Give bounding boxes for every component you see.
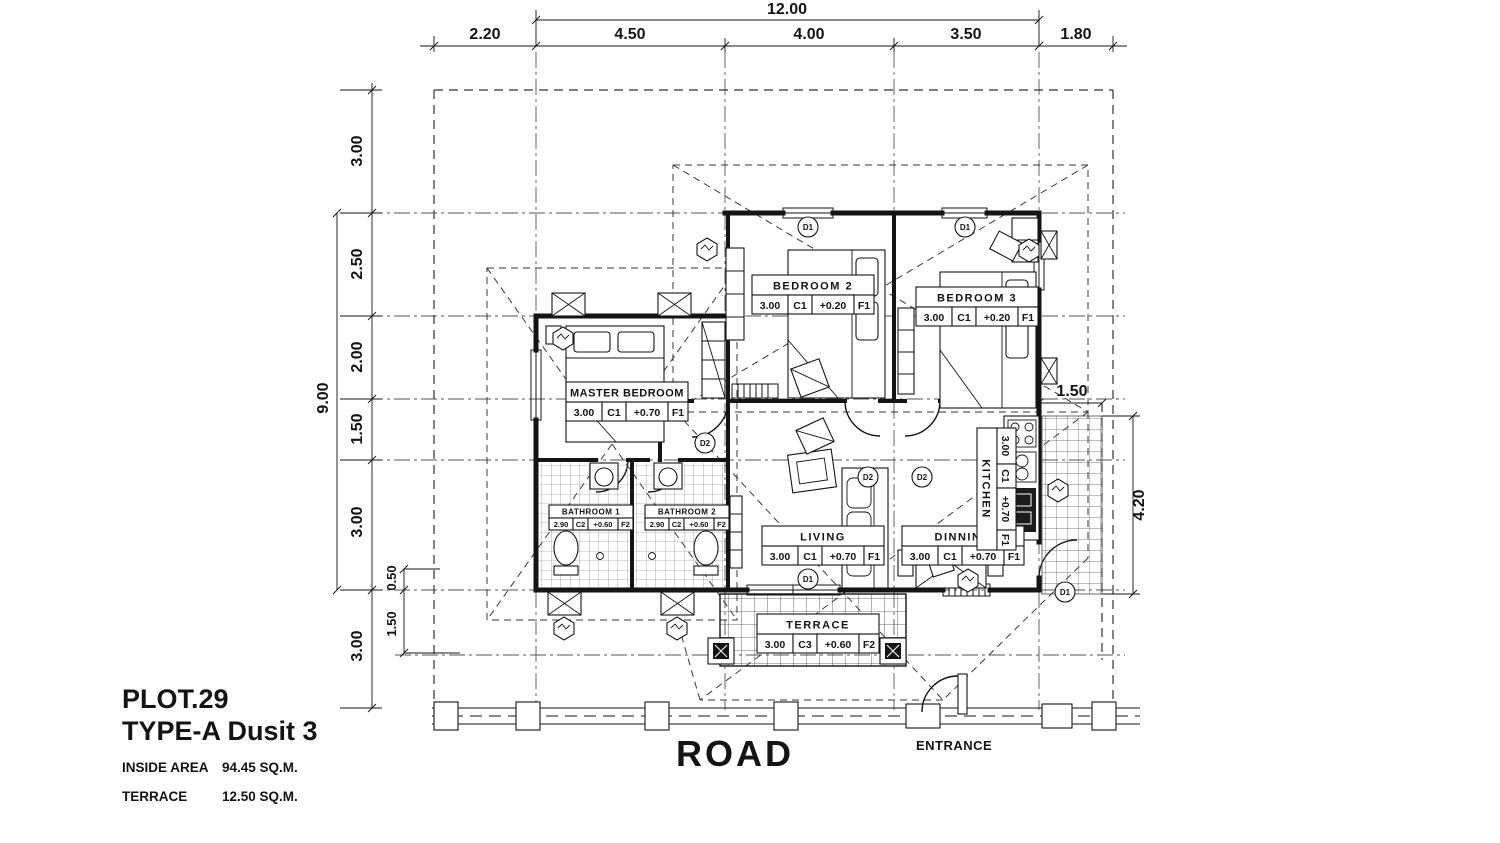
side-patio — [1042, 416, 1102, 594]
svg-text:F2: F2 — [717, 520, 726, 529]
svg-text:F1: F1 — [858, 300, 870, 312]
floor-plan-drawing: 12.00 2.20 4.50 4.00 3.50 1.80 3.00 2.50… — [0, 0, 1500, 843]
column-box — [552, 293, 585, 316]
fence-post — [434, 702, 458, 730]
svg-text:D1: D1 — [803, 575, 814, 584]
svg-text:+0.20: +0.20 — [820, 300, 847, 312]
dim-left-2: 2.50 — [349, 248, 366, 279]
fence-post — [774, 702, 798, 730]
bathroom1-toilet — [554, 531, 578, 565]
column-box — [661, 592, 694, 615]
svg-text:C1: C1 — [957, 312, 971, 324]
vent-grill-hall — [732, 384, 778, 398]
dim-top-1: 2.20 — [469, 26, 500, 43]
room-tag-bathroom2: BATHROOM 2 2.90C2+0.60F2 — [645, 505, 729, 530]
door-tag-d2: D2 — [912, 467, 932, 487]
dimension-left: 3.00 2.50 2.00 1.50 3.00 3.00 9.00 0.50 … — [315, 83, 460, 712]
armchair — [788, 449, 837, 493]
svg-text:D2: D2 — [917, 473, 928, 482]
dim-top-5: 1.80 — [1060, 26, 1091, 43]
svg-text:BATHROOM 2: BATHROOM 2 — [658, 508, 716, 517]
svg-text:LIVING: LIVING — [800, 532, 846, 544]
svg-text:3.00: 3.00 — [910, 551, 931, 563]
room-tag-kitchen: KITCHEN 3.00C1+0.70F1 — [977, 428, 1016, 550]
bathroom2-toilet — [694, 531, 718, 565]
window-tag-hex — [697, 238, 717, 261]
svg-text:F1: F1 — [1022, 312, 1034, 324]
svg-text:+0.60: +0.60 — [825, 639, 852, 651]
svg-text:C1: C1 — [803, 551, 817, 563]
inside-area-label: INSIDE AREA — [122, 760, 209, 775]
dim-left-3: 2.00 — [349, 341, 366, 372]
svg-text:D1: D1 — [1060, 588, 1071, 597]
side-table — [796, 418, 834, 454]
fence-post-gate — [1042, 704, 1072, 728]
svg-text:+0.20: +0.20 — [984, 312, 1011, 324]
fence-road: ROAD ENTRANCE — [432, 674, 1140, 774]
terrace-area-value: 12.50 SQ.M. — [222, 789, 298, 804]
bathroom1-sink — [595, 468, 613, 486]
dim-top-3: 4.00 — [793, 26, 824, 43]
svg-text:D2: D2 — [700, 439, 711, 448]
patio-tiles — [1042, 416, 1102, 594]
fence-post — [516, 702, 540, 730]
svg-text:D1: D1 — [803, 223, 814, 232]
dim-left-6: 3.00 — [349, 630, 366, 661]
svg-text:+0.70: +0.70 — [634, 407, 661, 419]
dim-left-1: 3.00 — [349, 135, 366, 166]
bedroom2-door-arc — [845, 401, 880, 436]
door-tag-d2: D2 — [858, 467, 878, 487]
svg-text:+0.70: +0.70 — [999, 496, 1011, 523]
svg-text:F1: F1 — [868, 551, 880, 563]
svg-text:3.00: 3.00 — [765, 639, 786, 651]
svg-text:+0.60: +0.60 — [594, 520, 613, 529]
bedroom2-furniture — [726, 248, 885, 398]
master-door-arc — [692, 401, 728, 437]
svg-text:+0.70: +0.70 — [970, 551, 997, 563]
inside-area-value: 94.45 SQ.M. — [222, 760, 298, 775]
room-tag-bedroom3: BEDROOM 3 3.00C1+0.20F1 — [916, 287, 1038, 326]
dim-right-420: 4.20 — [1131, 489, 1148, 520]
svg-text:3.00: 3.00 — [574, 407, 595, 419]
column-box — [1041, 358, 1057, 384]
room-tag-master-bedroom: MASTER BEDROOM 3.00C1+0.70F1 — [566, 382, 688, 421]
svg-text:F1: F1 — [672, 407, 684, 419]
door-tag-d2: D2 — [695, 433, 715, 453]
svg-text:C2: C2 — [576, 520, 586, 529]
svg-text:3.00: 3.00 — [770, 551, 791, 563]
dim-left-overall: 9.00 — [315, 382, 332, 413]
terrace-column — [880, 638, 906, 664]
svg-text:C3: C3 — [798, 639, 812, 651]
entrance-label: ENTRANCE — [916, 738, 992, 753]
dim-top-4: 3.50 — [950, 26, 981, 43]
svg-text:2.90: 2.90 — [650, 520, 665, 529]
svg-text:3.00: 3.00 — [999, 436, 1011, 457]
terrace-column — [708, 638, 734, 664]
dim-top-2: 4.50 — [614, 26, 645, 43]
door-tag-d1: D1 — [1055, 582, 1075, 602]
svg-text:+0.70: +0.70 — [830, 551, 857, 563]
dim-left-4: 1.50 — [349, 413, 366, 444]
terrace-area-label: TERRACE — [122, 789, 187, 804]
dim-left-5: 3.00 — [349, 506, 366, 537]
dim-right-150: 1.50 — [1056, 383, 1087, 400]
svg-text:C1: C1 — [607, 407, 621, 419]
svg-text:C2: C2 — [672, 520, 682, 529]
door-tag-d1: D1 — [955, 217, 975, 237]
dimension-top: 12.00 2.20 4.50 4.00 3.50 1.80 — [420, 1, 1127, 52]
svg-text:3.00: 3.00 — [924, 312, 945, 324]
svg-text:2.90: 2.90 — [554, 520, 569, 529]
dim-minor-050: 0.50 — [384, 565, 399, 590]
road-label: ROAD — [676, 733, 794, 774]
bedroom3-door-arc — [905, 401, 940, 436]
column-box — [1041, 231, 1057, 259]
wardrobe — [898, 308, 914, 394]
type-name: TYPE-A Dusit 3 — [122, 716, 318, 746]
floor-plan-sheet: 12.00 2.20 4.50 4.00 3.50 1.80 3.00 2.50… — [0, 0, 1500, 843]
door-tag-d1: D1 — [798, 217, 818, 237]
title-block: PLOT.29 TYPE-A Dusit 3 INSIDE AREA 94.45… — [122, 684, 318, 804]
svg-text:D1: D1 — [960, 223, 971, 232]
dim-minor-150: 1.50 — [384, 611, 399, 636]
svg-text:+0.60: +0.60 — [690, 520, 709, 529]
svg-text:BEDROOM 3: BEDROOM 3 — [937, 293, 1017, 305]
room-tag-terrace: TERRACE 3.00C3+0.60F2 — [757, 614, 879, 653]
svg-text:3.00: 3.00 — [760, 300, 781, 312]
svg-text:BATHROOM 1: BATHROOM 1 — [562, 508, 620, 517]
svg-text:C1: C1 — [999, 469, 1011, 483]
svg-text:F1: F1 — [1008, 551, 1020, 563]
room-tag-living: LIVING 3.00C1+0.70F1 — [762, 526, 884, 565]
window-master-west — [531, 350, 541, 420]
door-tag-d1: D1 — [798, 569, 818, 589]
svg-text:F2: F2 — [863, 639, 875, 651]
plot-number: PLOT.29 — [122, 684, 229, 714]
fence-post-gate — [906, 704, 940, 728]
dim-top-overall: 12.00 — [767, 1, 807, 18]
fence-post — [645, 702, 669, 730]
svg-text:C1: C1 — [793, 300, 807, 312]
svg-text:KITCHEN: KITCHEN — [980, 459, 992, 518]
svg-text:BEDROOM 2: BEDROOM 2 — [773, 281, 853, 293]
svg-text:D2: D2 — [863, 473, 874, 482]
svg-text:C1: C1 — [943, 551, 957, 563]
bathroom2-sink — [659, 468, 677, 486]
svg-text:F2: F2 — [621, 520, 630, 529]
column-box — [548, 592, 581, 615]
svg-text:TERRACE: TERRACE — [786, 620, 850, 632]
svg-text:F1: F1 — [999, 534, 1011, 546]
room-tag-bedroom2: BEDROOM 2 3.00C1+0.20F1 — [752, 275, 874, 314]
svg-text:MASTER BEDROOM: MASTER BEDROOM — [570, 388, 684, 400]
room-tag-bathroom1: BATHROOM 1 2.90C2+0.60F2 — [549, 505, 633, 530]
column-box — [658, 293, 691, 316]
fence-post — [1092, 702, 1116, 730]
